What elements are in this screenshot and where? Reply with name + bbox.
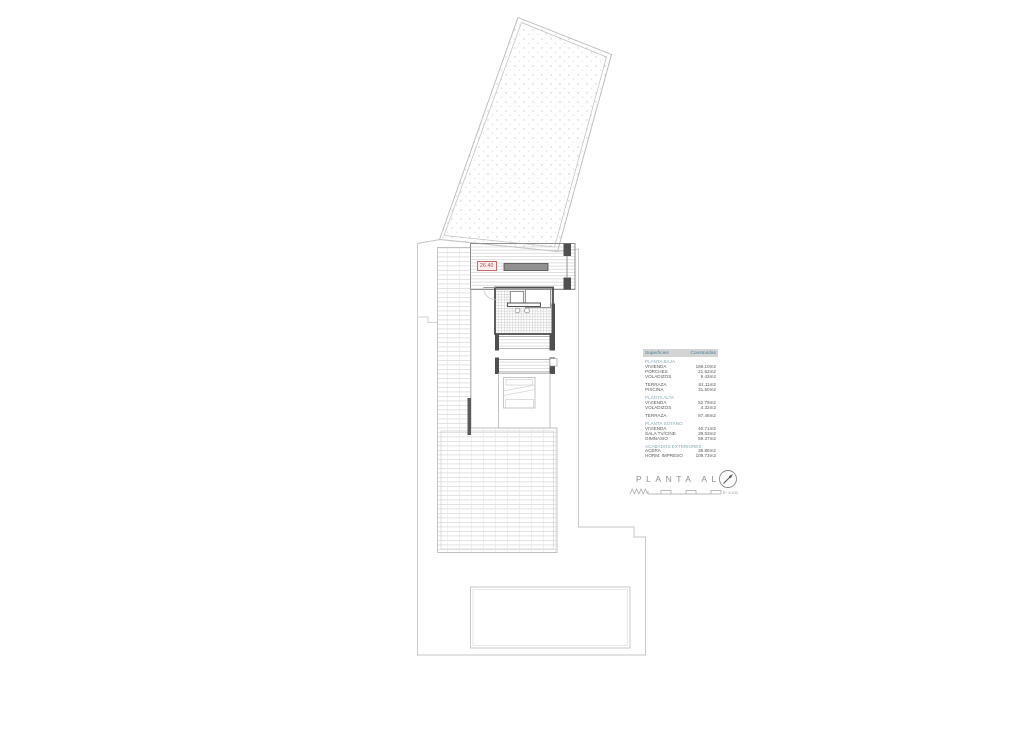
- area-row: VOLADIZOS 9.43m2: [643, 375, 718, 380]
- pool-outline: [471, 587, 631, 648]
- area-row: TERRAZA 87.46m2: [643, 414, 718, 419]
- area-label: HORM. IMPRESO: [645, 454, 683, 459]
- bedroom: [499, 374, 551, 429]
- wall-segment: [552, 304, 556, 335]
- floor-plan-drawing: [0, 0, 1024, 732]
- sink: [515, 308, 520, 313]
- areas-table: Superficies Construidas PLANTA BAJA VIVI…: [643, 349, 718, 459]
- area-row: VOLADIZOS 4.32m2: [643, 406, 718, 411]
- gravel-area: [440, 18, 612, 252]
- wall-segment: [564, 278, 572, 290]
- freestanding-wall: [468, 398, 472, 435]
- area-label: PISCINA: [645, 388, 663, 393]
- area-label: VOLADIZOS: [645, 406, 671, 411]
- bathroom: [484, 288, 554, 335]
- area-label: TERRAZA: [645, 414, 666, 419]
- window-box: [550, 359, 557, 367]
- vanity: [508, 303, 541, 307]
- voladizo-band-2: [495, 358, 557, 375]
- area-row: PISCINA 31.50m2: [643, 388, 718, 393]
- scale-bar: [629, 485, 724, 499]
- area-value: 4.32m2: [701, 406, 716, 411]
- areas-table-header: Superficies Construidas: [643, 349, 718, 357]
- area-value: 31.50m2: [698, 388, 716, 393]
- area-value: 87.46m2: [698, 414, 716, 419]
- area-value: 59.37m2: [698, 437, 716, 442]
- wall-segment: [564, 244, 572, 257]
- beam: [504, 264, 548, 271]
- shower-tray: [511, 292, 524, 304]
- scale-label: E: 1/100: [723, 490, 738, 495]
- area-label: VOLADIZOS: [645, 375, 671, 380]
- level-badge: 26.40: [477, 261, 497, 271]
- sink: [525, 308, 530, 313]
- area-label: GIMNASIO: [645, 437, 668, 442]
- area-value: 9.43m2: [701, 375, 716, 380]
- header-col-construidas: Construidas: [690, 351, 716, 356]
- drawing-sheet: 26.40 Superficies Construidas PLANTA BAJ…: [0, 0, 1024, 732]
- area-row: HORM. IMPRESO 109.73m2: [643, 454, 718, 459]
- voladizo-band-1: [495, 335, 555, 351]
- area-value: 109.73m2: [696, 454, 716, 459]
- area-row: GIMNASIO 59.37m2: [643, 437, 718, 442]
- header-col-superficies: Superficies: [645, 351, 669, 356]
